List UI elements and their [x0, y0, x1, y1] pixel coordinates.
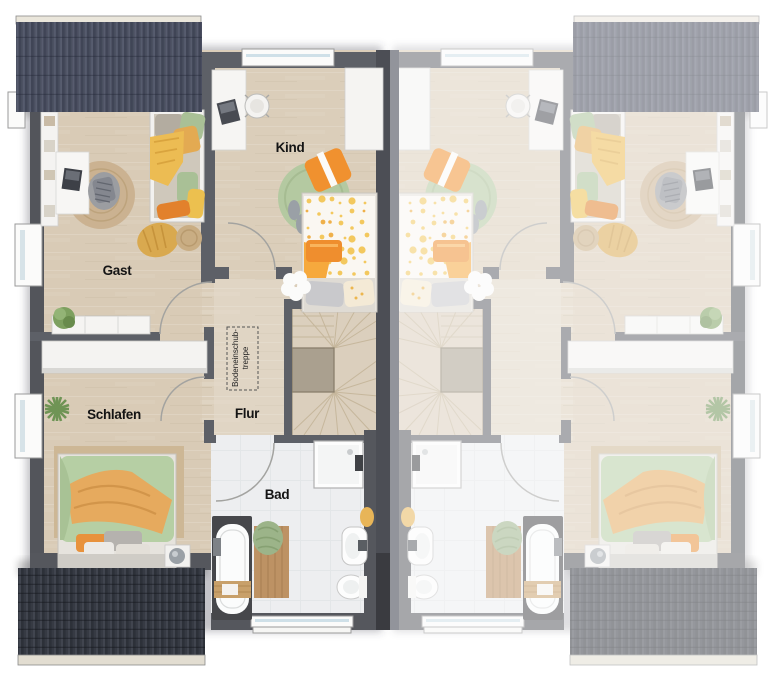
svg-text:Kind: Kind	[276, 140, 305, 155]
svg-text:Flur: Flur	[235, 406, 260, 421]
svg-text:Bad: Bad	[265, 487, 290, 502]
svg-text:Bodeneinschub-: Bodeneinschub-	[231, 329, 240, 387]
svg-text:Gast: Gast	[103, 263, 133, 278]
svg-text:Schlafen: Schlafen	[87, 407, 141, 422]
svg-text:treppe: treppe	[241, 346, 250, 369]
